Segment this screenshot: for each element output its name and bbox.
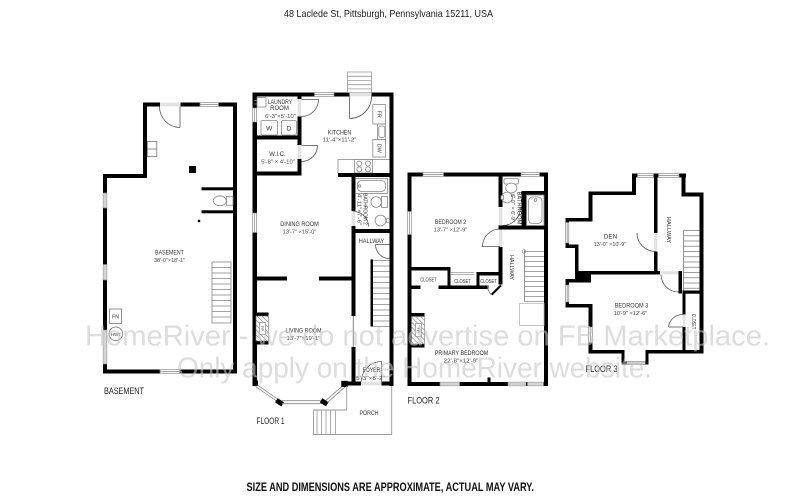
svg-text:HALLWAY: HALLWAY [508, 255, 514, 280]
svg-text:CLOSET: CLOSET [480, 279, 497, 285]
svg-text:BASEMENT: BASEMENT [155, 250, 184, 257]
svg-text:DEN: DEN [604, 234, 618, 241]
svg-text:DINING ROOM: DINING ROOM [280, 221, 319, 228]
svg-text:SIZE AND DIMENSIONS ARE APPROX: SIZE AND DIMENSIONS ARE APPROXIMATE, ACT… [247, 482, 535, 494]
svg-text:BEDROOM 2: BEDROOM 2 [435, 219, 467, 226]
svg-text:HALLWAY: HALLWAY [359, 238, 385, 245]
svg-text:10'-9" ×12'-6": 10'-9" ×12'-6" [614, 311, 648, 317]
svg-text:W.I.C.: W.I.C. [269, 151, 286, 158]
svg-text:38'-0"×18'-1": 38'-0"×18'-1" [154, 258, 185, 264]
svg-text:KITCHEN: KITCHEN [328, 130, 352, 137]
svg-text:FLOOR 2: FLOOR 2 [408, 396, 440, 406]
svg-text:13'-0" ×10'-9": 13'-0" ×10'-9" [594, 242, 627, 248]
svg-text:HALLWAY: HALLWAY [665, 217, 671, 244]
svg-text:11'-4"×11'-2": 11'-4"×11'-2" [323, 138, 357, 144]
svg-text:13'-7" ×15'-0": 13'-7" ×15'-0" [283, 230, 317, 236]
svg-text:D: D [287, 125, 292, 132]
svg-text:CLOSET: CLOSET [454, 279, 471, 285]
svg-text:ROOM: ROOM [270, 106, 289, 112]
svg-text:FLOOR 1: FLOOR 1 [257, 416, 285, 426]
svg-text:13'-7" ×12'-9": 13'-7" ×12'-9" [434, 228, 468, 234]
svg-text:BASEMENT: BASEMENT [104, 386, 144, 396]
svg-text:FR: FR [376, 111, 382, 118]
svg-text:48 Laclede St, Pittsburgh, Pen: 48 Laclede St, Pittsburgh, Pennsylvania … [284, 8, 493, 20]
svg-text:LAUNDRY: LAUNDRY [268, 100, 293, 106]
svg-text:4'-11"×7'-6": 4'-11"×7'-6" [356, 194, 362, 225]
svg-text:W: W [266, 125, 273, 132]
svg-text:BATHROOM: BATHROOM [516, 192, 522, 225]
svg-text:HomeRiver - we do not advertis: HomeRiver - we do not advertise on FB Ma… [85, 321, 770, 353]
svg-text:6'-0" × 6'-9": 6'-0" × 6'-9" [509, 194, 515, 222]
svg-text:PORCH: PORCH [360, 410, 379, 417]
svg-text:6'-3"×5'-10": 6'-3"×5'-10" [265, 114, 296, 120]
svg-text:CLOSET: CLOSET [420, 278, 437, 284]
svg-text:Only apply on the HomeRiver we: Only apply on the HomeRiver website. [177, 353, 652, 385]
svg-text:5'-8" × 4'-10": 5'-8" × 4'-10" [261, 160, 295, 166]
svg-text:BEDROOM 3: BEDROOM 3 [615, 303, 649, 310]
svg-text:DW: DW [376, 144, 382, 154]
